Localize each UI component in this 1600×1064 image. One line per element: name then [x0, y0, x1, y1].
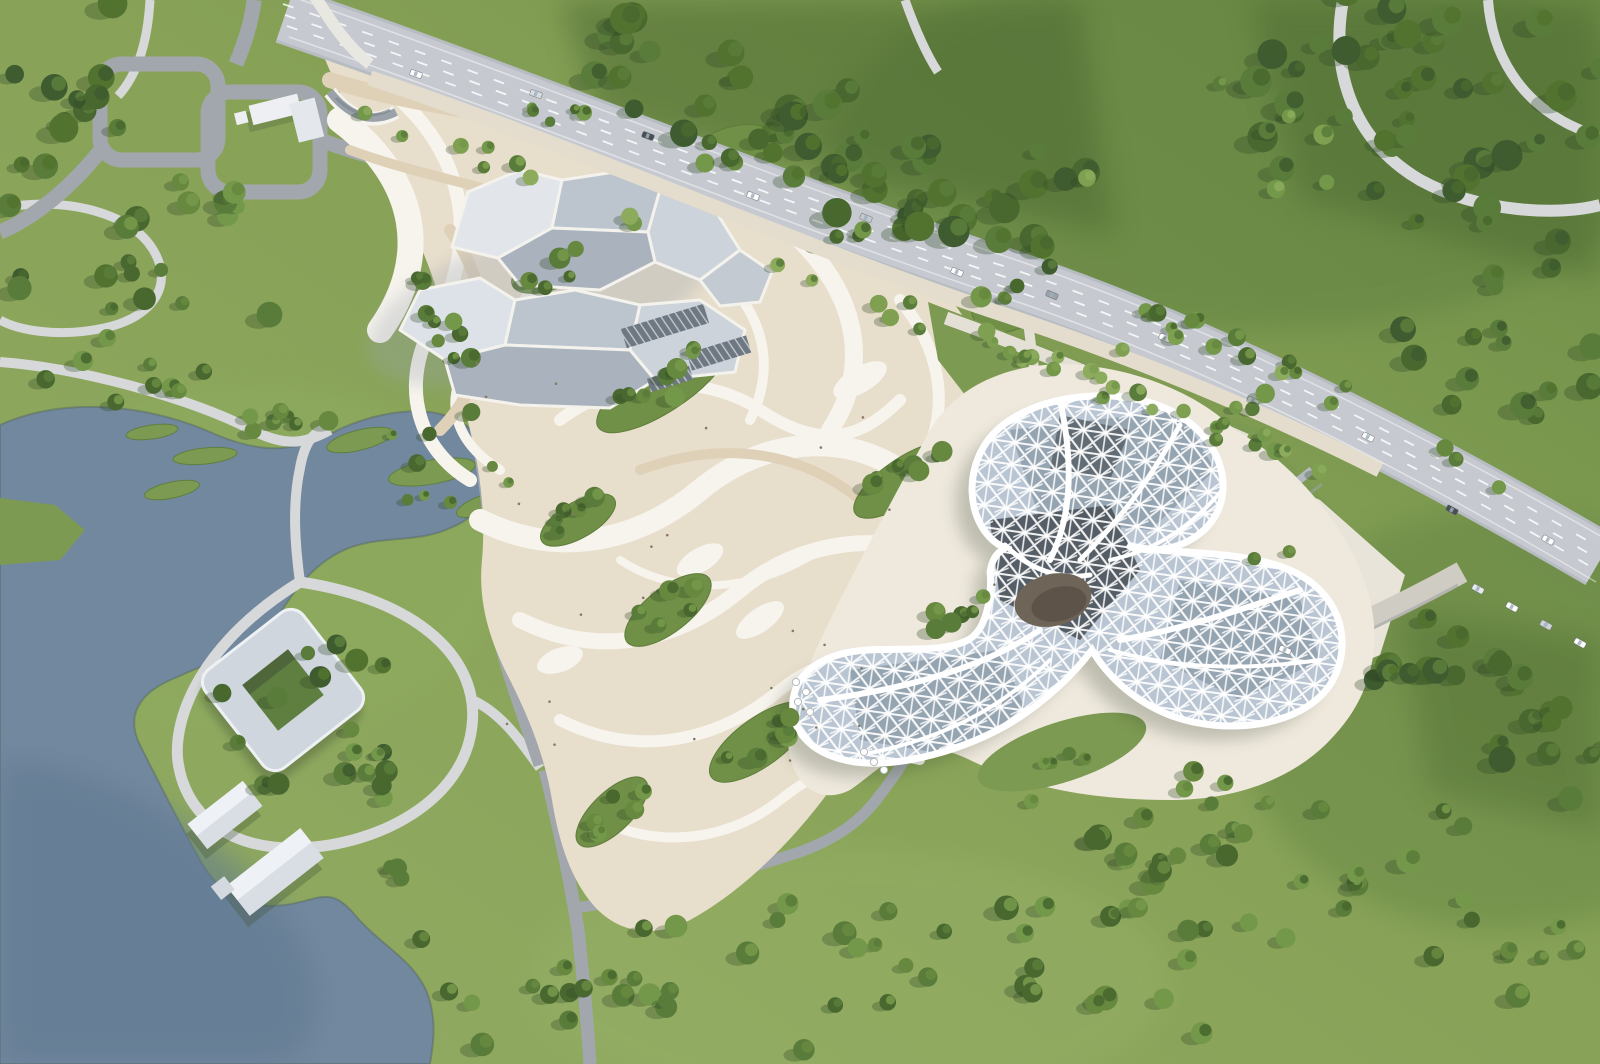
- person-dot: [642, 597, 645, 600]
- aerial-masterplan-rendering: [0, 0, 1600, 1064]
- person-dot: [666, 534, 669, 537]
- person-dot: [820, 446, 823, 449]
- person-dot: [802, 708, 805, 711]
- person-dot: [693, 738, 696, 741]
- person-dot: [476, 362, 479, 365]
- person-dot: [548, 700, 551, 703]
- person-dot: [572, 513, 575, 516]
- person-dot: [860, 667, 863, 670]
- umbrella: [792, 678, 799, 685]
- umbrella: [802, 688, 809, 695]
- person-dot: [858, 725, 861, 728]
- person-dot: [789, 759, 792, 762]
- person-dot: [506, 723, 509, 726]
- person-dot: [705, 427, 708, 430]
- umbrella: [806, 708, 813, 715]
- person-dot: [770, 687, 773, 690]
- scene-canvas: [0, 0, 1600, 1064]
- person-dot: [518, 503, 521, 506]
- umbrella: [860, 748, 867, 755]
- person-dot: [888, 508, 891, 511]
- person-dot: [580, 613, 583, 616]
- umbrella: [794, 698, 801, 705]
- person-dot: [555, 382, 558, 385]
- person-dot: [993, 583, 996, 586]
- person-dot: [815, 726, 818, 729]
- person-dot: [823, 644, 826, 647]
- person-dot: [862, 416, 865, 419]
- person-dot: [650, 545, 653, 548]
- person-dot: [792, 630, 795, 633]
- umbrella: [870, 758, 877, 765]
- person-dot: [485, 396, 488, 399]
- umbrella: [880, 766, 887, 773]
- person-dot: [553, 743, 556, 746]
